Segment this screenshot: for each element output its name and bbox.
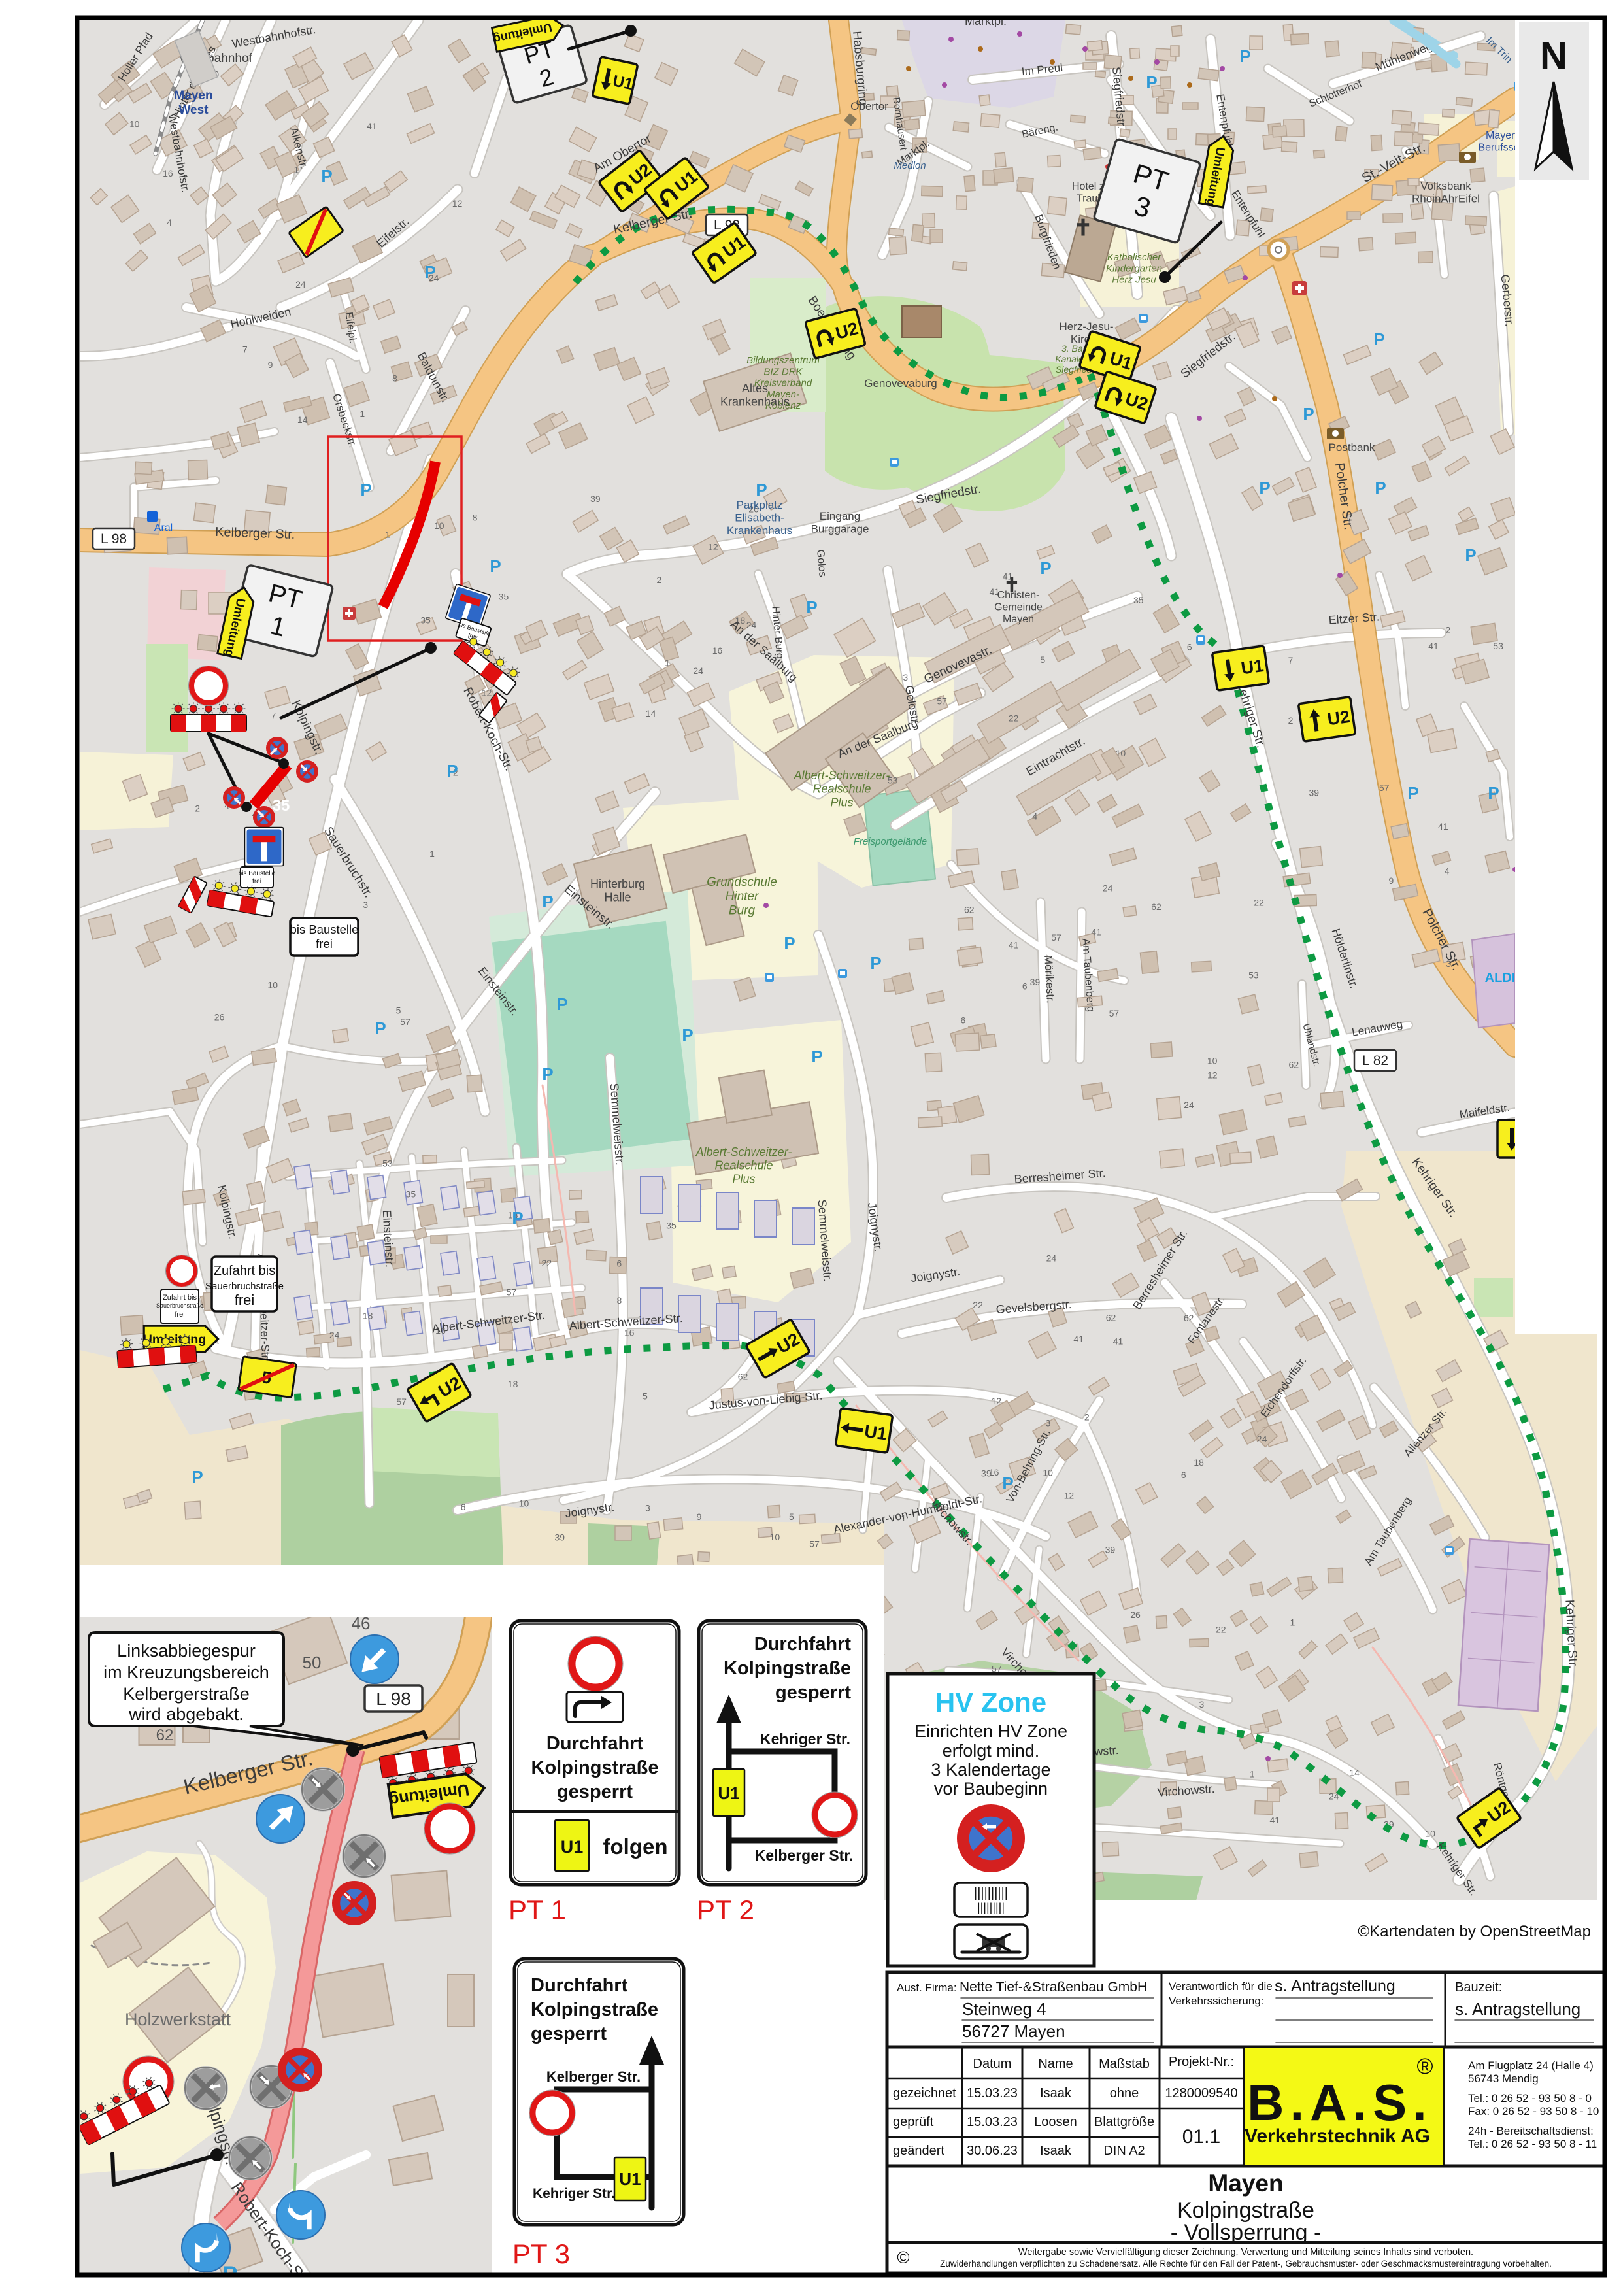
svg-text:P: P: [360, 480, 371, 499]
svg-text:Isaak: Isaak: [1040, 2144, 1072, 2158]
svg-text:Gemeinde: Gemeinde: [994, 601, 1043, 613]
svg-text:RheinAhrEifel: RheinAhrEifel: [1412, 193, 1480, 205]
svg-text:Weitergabe sowie Vervielfältig: Weitergabe sowie Vervielfältigung dieser…: [1018, 2247, 1473, 2257]
svg-text:bis Baustelle: bis Baustelle: [239, 870, 276, 877]
svg-text:2: 2: [1288, 715, 1294, 726]
svg-text:53: 53: [382, 1158, 393, 1168]
svg-text:Fax: 0 26 52 - 93 50 8 - 10: Fax: 0 26 52 - 93 50 8 - 10: [1468, 2105, 1599, 2118]
svg-text:6: 6: [960, 1015, 965, 1025]
svg-text:P: P: [1488, 783, 1499, 803]
svg-text:5: 5: [643, 1391, 648, 1402]
svg-text:P: P: [784, 934, 795, 953]
svg-text:Kolpingstraße: Kolpingstraße: [531, 1757, 659, 1778]
svg-text:30.06.23: 30.06.23: [967, 2144, 1018, 2158]
svg-text:Bauzeit:: Bauzeit:: [1455, 1980, 1502, 1995]
svg-text:3 Kalendertage: 3 Kalendertage: [931, 1760, 1050, 1780]
svg-text:41: 41: [367, 121, 377, 131]
svg-text:57: 57: [1379, 783, 1390, 793]
svg-text:24: 24: [1257, 1434, 1267, 1444]
svg-text:Plus: Plus: [732, 1172, 755, 1185]
svg-text:57: 57: [396, 1396, 407, 1407]
svg-text:62: 62: [156, 1727, 174, 1744]
svg-text:Durchfahrt: Durchfahrt: [546, 1733, 644, 1754]
svg-text:6: 6: [616, 1258, 622, 1269]
svg-text:10: 10: [519, 1498, 529, 1509]
svg-text:35: 35: [406, 1189, 416, 1199]
svg-text:Golos: Golos: [814, 549, 828, 577]
svg-text:12: 12: [992, 1396, 1002, 1406]
svg-text:Kolpingstraße: Kolpingstraße: [1177, 2198, 1314, 2223]
svg-text:1: 1: [1250, 1769, 1255, 1780]
svg-text:P: P: [542, 892, 553, 911]
svg-text:56743 Mendig: 56743 Mendig: [1468, 2072, 1539, 2085]
svg-text:P: P: [556, 994, 567, 1014]
svg-text:Mörikestr.: Mörikestr.: [1042, 954, 1057, 1004]
svg-text:12: 12: [708, 541, 718, 552]
svg-text:Verkehrstechnik AG: Verkehrstechnik AG: [1245, 2125, 1430, 2147]
svg-text:12: 12: [452, 198, 463, 209]
svg-text:3: 3: [1199, 1699, 1204, 1710]
svg-text:Ausf. Firma:: Ausf. Firma:: [897, 1982, 957, 1994]
svg-text:14: 14: [646, 708, 656, 718]
svg-text:2: 2: [195, 803, 200, 814]
svg-text:10: 10: [267, 979, 278, 990]
svg-text:16: 16: [163, 168, 173, 178]
svg-text:3: 3: [645, 1502, 650, 1513]
svg-text:Herz Jesu: Herz Jesu: [1112, 275, 1156, 286]
svg-text:41: 41: [1428, 641, 1439, 651]
svg-text:2: 2: [1445, 624, 1450, 635]
svg-text:26: 26: [214, 1011, 225, 1022]
svg-text:57: 57: [400, 1017, 410, 1027]
svg-text:8: 8: [473, 512, 478, 522]
svg-text:10: 10: [129, 119, 140, 129]
svg-text:7: 7: [1288, 655, 1294, 666]
svg-text:©Kartendaten by OpenStreetMap: ©Kartendaten by OpenStreetMap: [1358, 1923, 1591, 1940]
svg-text:Krankenhaus: Krankenhaus: [720, 396, 790, 409]
svg-text:Burggarage: Burggarage: [811, 523, 869, 535]
svg-text:57: 57: [809, 1539, 820, 1549]
svg-text:8: 8: [392, 373, 397, 384]
svg-text:35: 35: [420, 615, 431, 625]
svg-text:62: 62: [738, 1372, 748, 1382]
svg-text:Medlon: Medlon: [894, 160, 926, 171]
svg-text:2: 2: [657, 575, 662, 585]
svg-text:Zufahrt bis: Zufahrt bis: [163, 1294, 197, 1302]
svg-text:39: 39: [981, 1468, 992, 1479]
svg-text:10: 10: [1043, 1467, 1053, 1477]
svg-text:Kehriger Str.: Kehriger Str.: [760, 1730, 850, 1747]
svg-text:|||||||||: |||||||||: [977, 1901, 1005, 1914]
svg-text:Plus: Plus: [830, 796, 853, 809]
svg-text:wird abgebakt.: wird abgebakt.: [128, 1704, 244, 1724]
svg-text:P: P: [1375, 478, 1386, 498]
svg-text:Kelberger Str.: Kelberger Str.: [755, 1847, 854, 1864]
svg-text:1: 1: [429, 849, 435, 859]
svg-text:P: P: [756, 480, 767, 499]
svg-text:1: 1: [359, 409, 365, 419]
svg-text:N: N: [1540, 35, 1567, 77]
svg-text:5: 5: [396, 1005, 401, 1016]
svg-text:bis Baustelle: bis Baustelle: [290, 922, 359, 936]
svg-text:01.1: 01.1: [1182, 2126, 1220, 2148]
svg-text:10: 10: [1116, 748, 1126, 758]
svg-text:41: 41: [1438, 821, 1448, 832]
svg-text:PT 1: PT 1: [509, 1895, 566, 1925]
svg-text:22: 22: [1009, 713, 1019, 724]
svg-text:10: 10: [434, 520, 444, 531]
svg-text:62: 62: [1106, 1312, 1116, 1323]
svg-text:3: 3: [903, 672, 908, 683]
svg-text:®: ®: [1416, 2054, 1433, 2079]
svg-text:P: P: [1239, 46, 1250, 66]
svg-text:57: 57: [937, 696, 947, 707]
svg-text:Kolpingstraße: Kolpingstraße: [724, 1658, 851, 1679]
svg-text:Sauerbruchstraße: Sauerbruchstraße: [156, 1302, 203, 1309]
svg-text:18: 18: [1194, 1457, 1204, 1468]
svg-text:Blattgröße: Blattgröße: [1094, 2115, 1154, 2129]
svg-text:24: 24: [1184, 1100, 1194, 1110]
svg-text:41: 41: [1269, 1815, 1280, 1825]
svg-text:Am Flugplatz 24 (Halle 4): Am Flugplatz 24 (Halle 4): [1468, 2059, 1594, 2072]
svg-text:Kelbergerstraße: Kelbergerstraße: [123, 1684, 250, 1704]
svg-text:Umleitung: Umleitung: [143, 1332, 207, 1347]
svg-text:15.03.23: 15.03.23: [967, 2115, 1018, 2129]
svg-text:PT 2: PT 2: [697, 1895, 754, 1925]
svg-text:Nette Tief-&Straßenbau GmbH: Nette Tief-&Straßenbau GmbH: [960, 1980, 1147, 1995]
svg-text:Halle: Halle: [604, 891, 631, 904]
svg-text:s. Antragstellung: s. Antragstellung: [1455, 1999, 1580, 2019]
svg-text:8: 8: [616, 1295, 622, 1306]
svg-text:16: 16: [712, 645, 723, 656]
svg-text:P: P: [1146, 73, 1157, 92]
svg-text:geprüft: geprüft: [893, 2115, 934, 2129]
svg-text:gesperrt: gesperrt: [775, 1682, 851, 1703]
svg-text:gezeichnet: gezeichnet: [893, 2086, 956, 2101]
svg-text:24: 24: [1103, 883, 1113, 894]
svg-text:Obertor: Obertor: [850, 100, 888, 112]
svg-text:62: 62: [1151, 902, 1161, 912]
svg-text:Holzwerkstatt: Holzwerkstatt: [125, 2010, 231, 2029]
svg-text:P: P: [1407, 783, 1418, 803]
svg-text:4: 4: [167, 217, 172, 228]
svg-text:Kolpingstraße: Kolpingstraße: [531, 1999, 658, 2020]
svg-text:41: 41: [1009, 940, 1019, 951]
svg-text:57: 57: [507, 1287, 517, 1298]
svg-text:Eingang: Eingang: [820, 510, 860, 522]
svg-text:57: 57: [1051, 932, 1061, 943]
svg-text:BIZ DRK: BIZ DRK: [763, 366, 803, 377]
svg-text:HV Zone: HV Zone: [935, 1687, 1046, 1717]
svg-text:B.A.S.: B.A.S.: [1247, 2074, 1433, 2131]
svg-text:L 82: L 82: [1362, 1053, 1388, 1068]
svg-text:41: 41: [1091, 927, 1101, 937]
svg-text:Loosen: Loosen: [1034, 2115, 1077, 2129]
svg-text:Verkehrssicherung:: Verkehrssicherung:: [1169, 1995, 1264, 2007]
svg-text:L 98: L 98: [376, 1689, 410, 1709]
svg-text:Katholischer: Katholischer: [1107, 252, 1162, 263]
svg-text:7: 7: [242, 344, 248, 354]
svg-text:39: 39: [1105, 1544, 1116, 1555]
svg-text:DIN A2: DIN A2: [1103, 2144, 1145, 2158]
svg-text:56727 Mayen: 56727 Mayen: [962, 2021, 1065, 2041]
svg-text:✝: ✝: [1074, 216, 1093, 241]
svg-text:Bildungszentrum: Bildungszentrum: [746, 355, 820, 366]
svg-text:14: 14: [1349, 1767, 1360, 1778]
svg-text:Postbank: Postbank: [1329, 441, 1375, 454]
svg-text:Name: Name: [1038, 2057, 1073, 2071]
svg-text:39: 39: [590, 494, 601, 504]
svg-text:Albert-Schweitzer-: Albert-Schweitzer-: [695, 1145, 792, 1158]
svg-text:24: 24: [295, 279, 306, 290]
svg-text:Steinweg 4: Steinweg 4: [962, 1999, 1046, 2019]
svg-text:50: 50: [303, 1653, 322, 1672]
svg-text:P: P: [490, 556, 501, 576]
svg-text:5: 5: [1040, 654, 1045, 665]
svg-text:41: 41: [1073, 1334, 1084, 1344]
svg-text:erfolgt mind.: erfolgt mind.: [943, 1741, 1040, 1761]
svg-text:P: P: [542, 1064, 553, 1084]
svg-text:Hinterburg: Hinterburg: [590, 877, 645, 890]
svg-text:Parkplatz: Parkplatz: [737, 499, 783, 511]
svg-text:Tel.: 0 26 52 - 93 50 8 - 0: Tel.: 0 26 52 - 93 50 8 - 0: [1468, 2092, 1592, 2104]
svg-text:U1: U1: [619, 2169, 641, 2189]
svg-text:Verantwortlich für die: Verantwortlich für die: [1169, 1980, 1273, 1993]
svg-text:P: P: [1465, 545, 1476, 565]
svg-text:P: P: [1040, 558, 1051, 578]
svg-text:10: 10: [1207, 1055, 1218, 1066]
svg-text:14: 14: [297, 414, 308, 425]
svg-text:Kehriger Str.: Kehriger Str.: [533, 2186, 615, 2201]
svg-text:7: 7: [271, 710, 276, 720]
svg-text:53: 53: [1248, 970, 1259, 981]
svg-text:Mayen: Mayen: [1486, 130, 1517, 141]
svg-text:Einrichten HV Zone: Einrichten HV Zone: [914, 1721, 1067, 1741]
svg-text:22: 22: [1254, 897, 1264, 907]
svg-text:frei: frei: [252, 878, 261, 885]
svg-text:39: 39: [554, 1532, 565, 1543]
svg-text:4: 4: [1445, 866, 1450, 877]
svg-text:24h - Bereitschaftsdienst:: 24h - Bereitschaftsdienst:: [1468, 2125, 1594, 2137]
svg-text:35: 35: [1133, 595, 1144, 605]
svg-text:53: 53: [1493, 641, 1503, 651]
svg-text:9: 9: [697, 1511, 702, 1522]
svg-text:6: 6: [1187, 642, 1192, 652]
svg-text:Burg: Burg: [729, 904, 756, 918]
svg-text:U1: U1: [863, 1421, 888, 1444]
svg-text:1280009540: 1280009540: [1165, 2086, 1237, 2101]
svg-text:35: 35: [273, 797, 290, 815]
svg-text:Mayen: Mayen: [174, 89, 212, 103]
svg-text:Durchfahrt: Durchfahrt: [754, 1634, 852, 1655]
svg-text:16: 16: [624, 1327, 635, 1338]
svg-text:Volksbank: Volksbank: [1420, 180, 1471, 192]
svg-text:12: 12: [482, 687, 492, 698]
svg-text:Sauerbruchstraße: Sauerbruchstraße: [205, 1281, 284, 1292]
svg-text:U1: U1: [1240, 656, 1265, 679]
svg-text:Elisabeth-: Elisabeth-: [735, 512, 784, 524]
svg-text:frei: frei: [316, 937, 333, 951]
svg-text:ALDI: ALDI: [1485, 971, 1516, 985]
svg-text:41: 41: [1113, 1336, 1124, 1347]
svg-text:im Kreuzungsbereich: im Kreuzungsbereich: [103, 1663, 269, 1682]
svg-text:1: 1: [385, 530, 390, 540]
svg-text:gesperrt: gesperrt: [557, 1781, 633, 1802]
svg-text:P: P: [806, 598, 817, 617]
svg-text:Mayen: Mayen: [1208, 2170, 1283, 2197]
svg-text:P: P: [870, 953, 881, 973]
svg-text:9: 9: [1389, 875, 1394, 886]
svg-text:Altes: Altes: [742, 382, 768, 395]
svg-text:22: 22: [541, 1258, 552, 1268]
svg-text:26: 26: [1130, 1610, 1141, 1620]
svg-text:39: 39: [1309, 788, 1320, 798]
svg-text:2: 2: [1084, 1411, 1090, 1422]
svg-text:West: West: [178, 103, 209, 117]
svg-text:Grundschule: Grundschule: [707, 875, 777, 889]
svg-text:P: P: [1259, 478, 1270, 498]
svg-text:||||||||||: ||||||||||: [974, 1886, 1008, 1900]
svg-text:9: 9: [268, 360, 273, 370]
svg-text:P: P: [811, 1047, 822, 1066]
svg-text:folgen: folgen: [603, 1834, 668, 1859]
svg-text:57: 57: [1109, 1008, 1120, 1019]
svg-text:Maßstab: Maßstab: [1099, 2057, 1150, 2071]
svg-text:12: 12: [1207, 1070, 1218, 1080]
svg-text:P: P: [321, 166, 332, 186]
svg-text:Albert-Schweitzer-: Albert-Schweitzer-: [794, 769, 890, 782]
svg-text:Krankenhaus: Krankenhaus: [727, 524, 792, 537]
svg-text:1: 1: [665, 658, 670, 668]
svg-text:©: ©: [897, 2248, 909, 2267]
svg-text:L 98: L 98: [101, 532, 127, 547]
svg-text:12: 12: [1064, 1491, 1075, 1501]
svg-text:geändert: geändert: [893, 2144, 944, 2158]
svg-text:P: P: [1303, 404, 1314, 424]
svg-text:ohne: ohne: [1110, 2086, 1139, 2101]
svg-text:24: 24: [693, 666, 703, 676]
svg-text:10: 10: [1425, 1829, 1435, 1839]
svg-text:s. Antragstellung: s. Antragstellung: [1275, 1977, 1395, 1995]
svg-text:P: P: [1373, 329, 1384, 349]
svg-text:Mayen: Mayen: [1003, 614, 1034, 625]
svg-text:Linksabbiegespur: Linksabbiegespur: [117, 1641, 256, 1661]
svg-text:vor Baubeginn: vor Baubeginn: [934, 1779, 1048, 1798]
svg-text:P: P: [446, 761, 458, 781]
svg-text:frei: frei: [175, 1311, 184, 1319]
svg-text:35: 35: [666, 1221, 677, 1231]
svg-text:Herz-Jesu-: Herz-Jesu-: [1059, 320, 1113, 333]
svg-text:Realschule: Realschule: [714, 1159, 773, 1172]
svg-text:62: 62: [1289, 1059, 1299, 1070]
svg-text:Kindergarten: Kindergarten: [1106, 263, 1162, 274]
svg-text:Freisportgelände: Freisportgelände: [854, 836, 927, 847]
svg-text:Genovevaburg: Genovevaburg: [864, 377, 937, 390]
svg-text:62: 62: [1184, 1313, 1194, 1323]
svg-text:P: P: [424, 262, 435, 282]
svg-text:18: 18: [363, 1311, 373, 1321]
svg-text:Zufahrt bis: Zufahrt bis: [214, 1264, 275, 1278]
svg-text:- Vollsperrung -: - Vollsperrung -: [1171, 2220, 1322, 2245]
svg-text:24: 24: [1046, 1253, 1057, 1264]
svg-text:Tel.: 0 26 52 - 93 50 8 - 11: Tel.: 0 26 52 - 93 50 8 - 11: [1468, 2138, 1597, 2150]
svg-text:5: 5: [789, 1511, 794, 1522]
svg-text:Hinter: Hinter: [726, 890, 759, 903]
svg-text:1: 1: [1290, 1617, 1295, 1627]
svg-text:62: 62: [964, 904, 975, 915]
svg-text:U1: U1: [561, 1837, 584, 1857]
svg-text:18: 18: [508, 1379, 518, 1389]
svg-text:Projekt-Nr.:: Projekt-Nr.:: [1169, 2055, 1234, 2069]
svg-text:10: 10: [770, 1532, 780, 1542]
svg-text:24: 24: [329, 1330, 340, 1340]
svg-text:P: P: [192, 1467, 203, 1487]
svg-text:frei: frei: [235, 1292, 255, 1308]
svg-text:✝: ✝: [1003, 575, 1020, 596]
svg-text:P: P: [1002, 1474, 1013, 1493]
svg-text:35: 35: [499, 592, 509, 602]
svg-text:P: P: [682, 1025, 693, 1045]
svg-text:gesperrt: gesperrt: [531, 2023, 607, 2044]
svg-text:Isaak: Isaak: [1040, 2086, 1072, 2101]
svg-text:Durchfahrt: Durchfahrt: [531, 1975, 628, 1996]
svg-text:U1: U1: [718, 1783, 739, 1803]
svg-text:Zuwiderhandlungen verpflichten: Zuwiderhandlungen verpflichten zu Schade…: [940, 2259, 1552, 2269]
svg-text:P: P: [512, 1208, 523, 1228]
svg-text:Kelberger Str.: Kelberger Str.: [546, 2068, 641, 2085]
svg-text:U2: U2: [1326, 707, 1351, 730]
svg-text:6: 6: [1181, 1470, 1186, 1480]
svg-text:6: 6: [1022, 981, 1028, 992]
svg-text:Datum: Datum: [973, 2057, 1012, 2071]
svg-text:Kelberger Str.: Kelberger Str.: [215, 525, 295, 542]
svg-text:22: 22: [1216, 1624, 1226, 1634]
svg-text:4: 4: [1032, 811, 1037, 821]
svg-text:39: 39: [1030, 977, 1041, 987]
svg-text:15.03.23: 15.03.23: [967, 2086, 1018, 2101]
svg-text:Realschule: Realschule: [812, 783, 871, 796]
svg-text:22: 22: [973, 1300, 983, 1310]
svg-text:P: P: [375, 1019, 386, 1038]
svg-text:Aral: Aral: [154, 522, 173, 533]
svg-text:3: 3: [363, 900, 368, 910]
svg-text:PT 3: PT 3: [512, 2238, 570, 2269]
svg-text:3: 3: [1046, 1417, 1051, 1428]
svg-text:6: 6: [461, 1502, 466, 1512]
